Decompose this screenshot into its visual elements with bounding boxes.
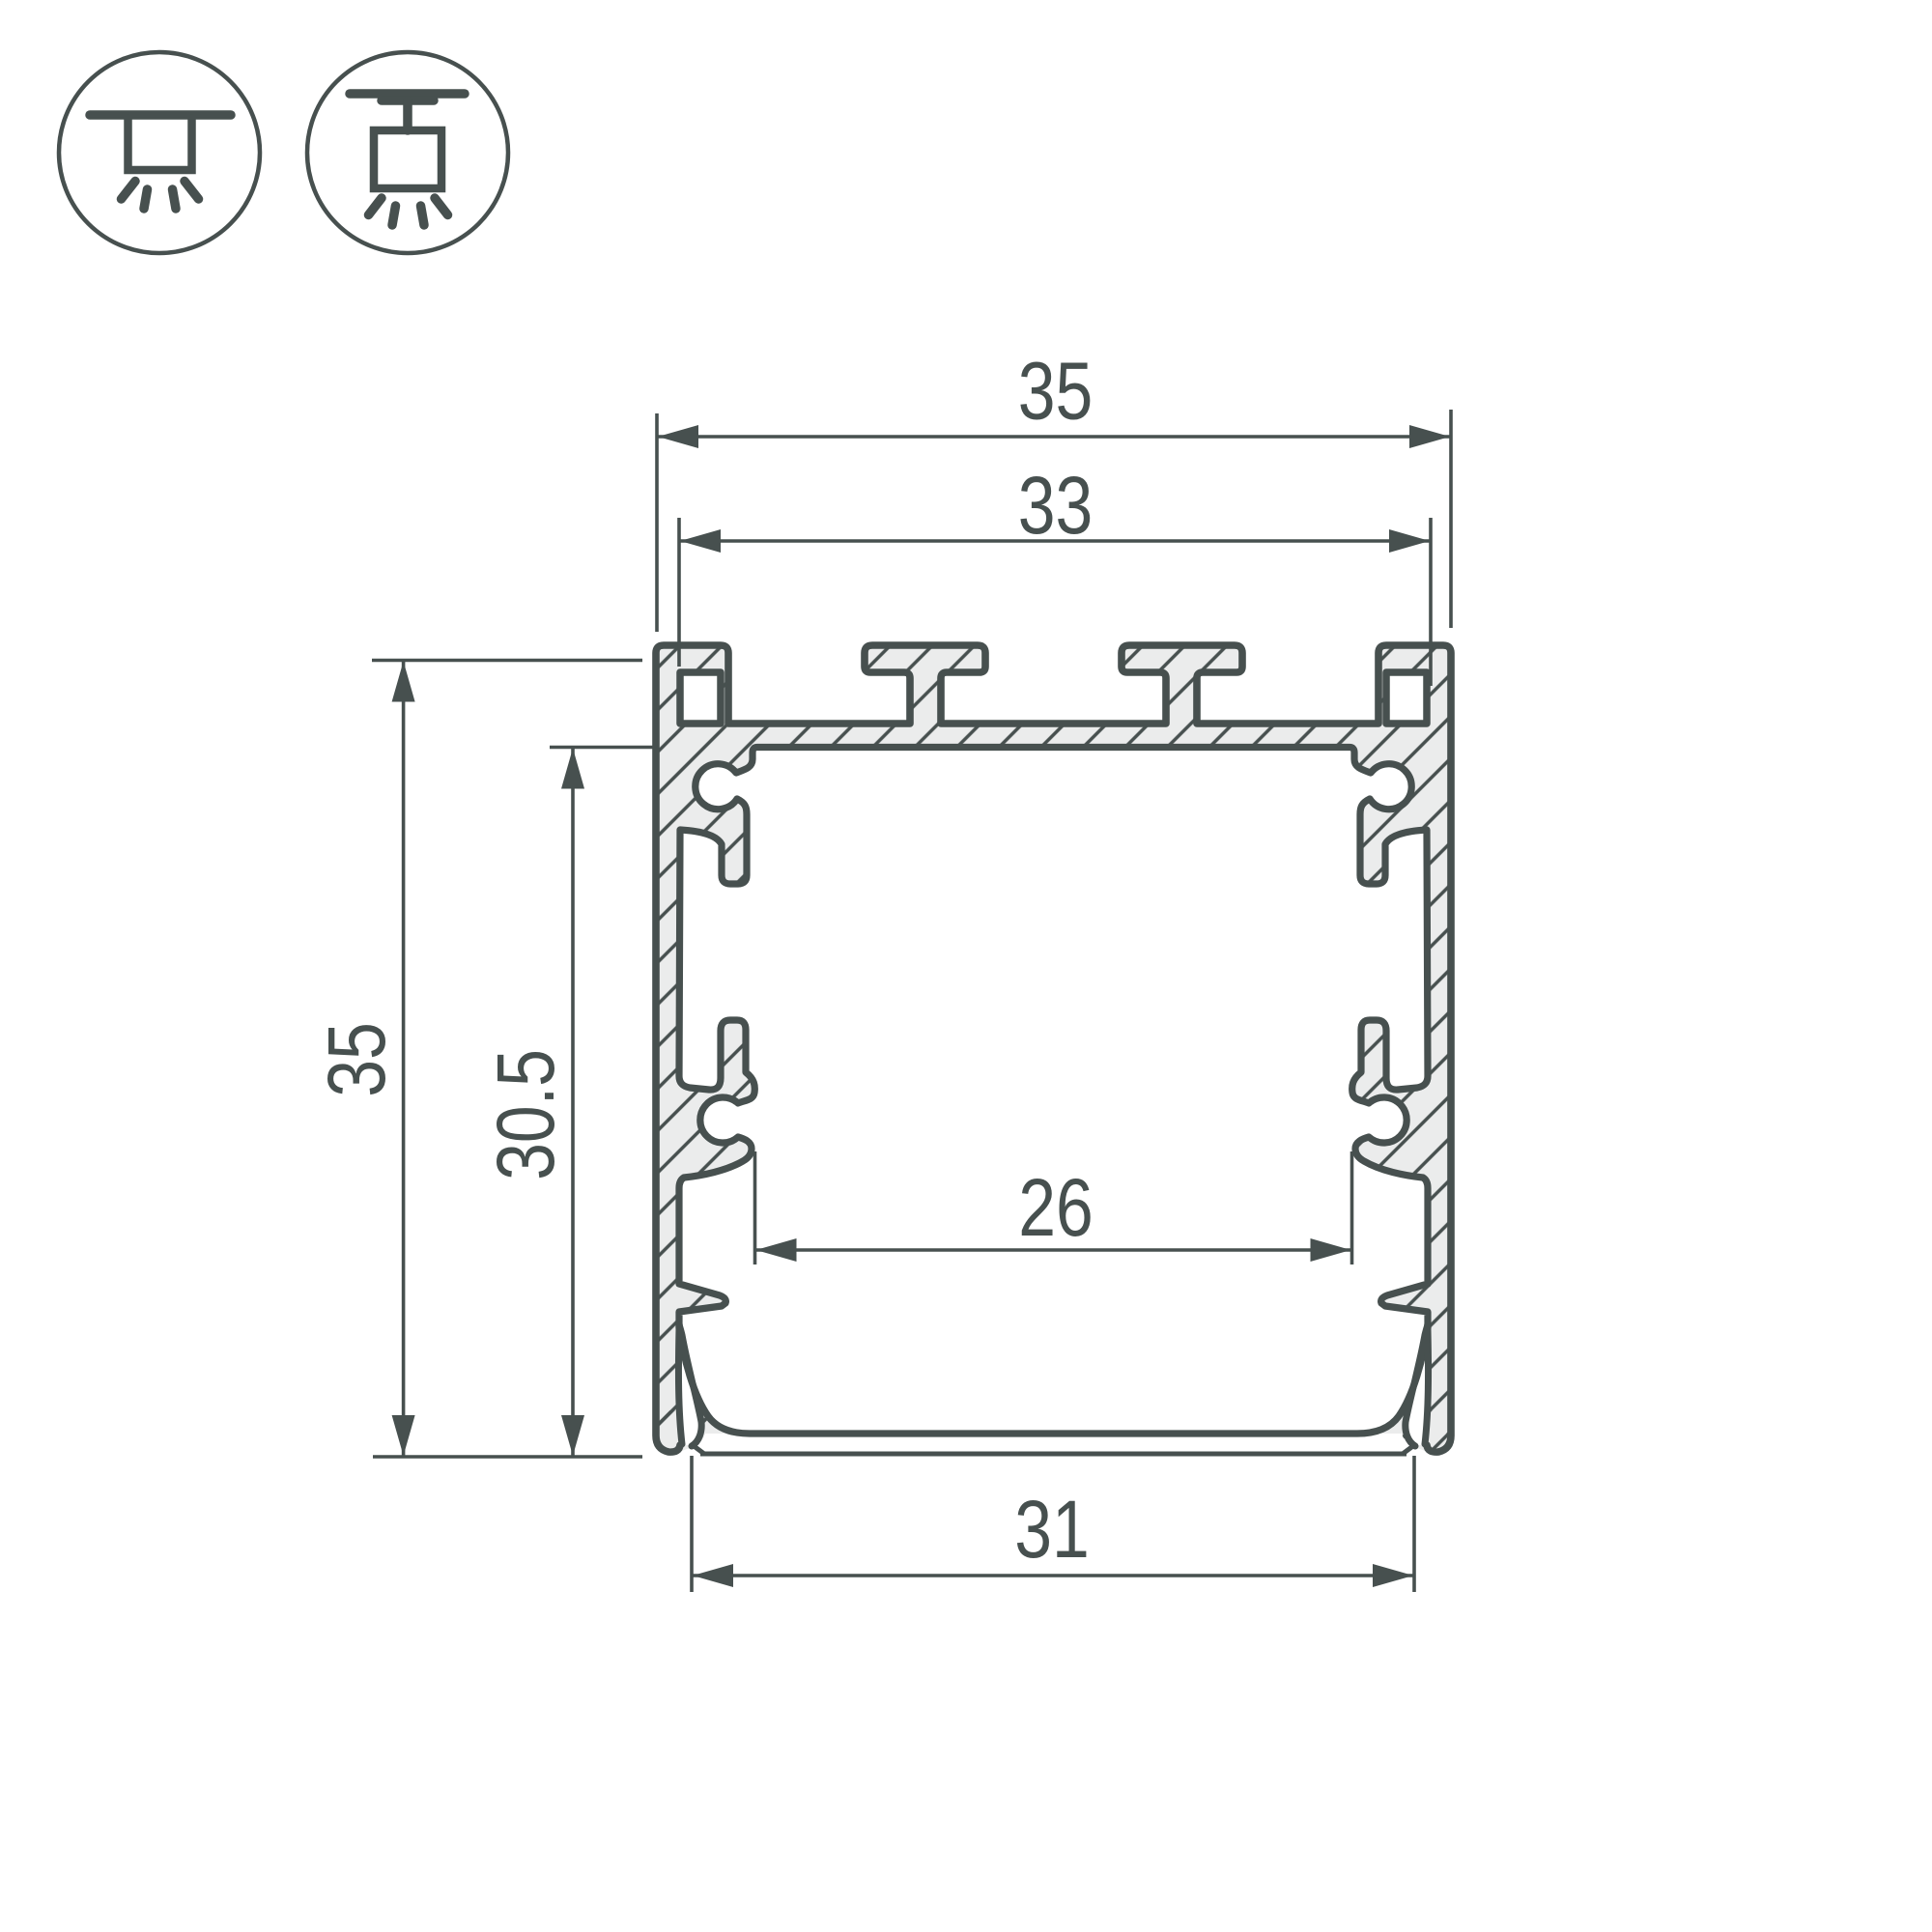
svg-text:26: 26	[1018, 1163, 1094, 1254]
svg-text:33: 33	[1018, 461, 1094, 552]
svg-text:31: 31	[1014, 1485, 1090, 1576]
svg-text:30.5: 30.5	[481, 1049, 572, 1180]
svg-text:35: 35	[312, 1022, 403, 1097]
svg-text:35: 35	[1018, 346, 1094, 437]
